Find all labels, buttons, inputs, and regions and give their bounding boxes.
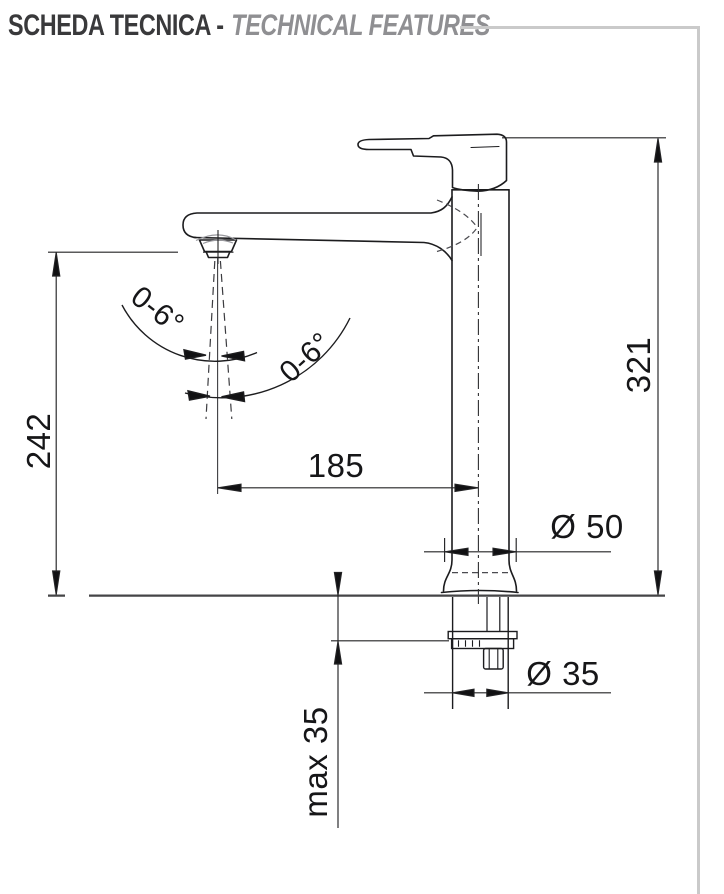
hose-connector-lines <box>489 649 498 669</box>
arrow-down <box>334 573 341 595</box>
arrow-right <box>493 548 516 555</box>
aerator-tangent-curves <box>196 235 236 244</box>
arc-lower-arrow-right <box>222 392 245 402</box>
arrow-down <box>654 571 661 595</box>
arrow-right <box>455 484 478 491</box>
mounting-washer <box>448 632 517 639</box>
spout-top-edge <box>183 197 452 238</box>
tie-rod <box>487 597 500 632</box>
handle-lever <box>358 134 507 191</box>
base-bottom-edge <box>442 591 519 593</box>
label-max-deck-thickness: max 35 <box>297 706 335 817</box>
arrow-left <box>218 484 241 491</box>
nut-knurling <box>459 640 480 647</box>
label-spout-height: 242 <box>20 413 58 470</box>
arrow-up <box>334 642 341 665</box>
label-base-diameter: Ø 50 <box>550 508 624 546</box>
arrow-left <box>445 548 468 555</box>
aerator-crosshair <box>203 230 234 264</box>
arrow-right <box>487 689 508 696</box>
arrow-left <box>453 689 474 696</box>
arrow-down <box>53 571 60 595</box>
handle-detail-line <box>471 147 499 148</box>
label-spout-reach: 185 <box>308 447 365 485</box>
arc-upper-arrow-left <box>184 350 206 359</box>
arrow-up <box>53 253 60 277</box>
technical-sheet: SCHEDA TECNICA - TECHNICAL FEATURES <box>0 0 724 894</box>
mounting-nut <box>452 639 514 649</box>
dimension-max-35 <box>331 572 449 828</box>
label-total-height: 321 <box>620 337 658 394</box>
dimension-185 <box>218 484 478 491</box>
hose-connector <box>484 649 504 670</box>
arrow-up <box>654 139 661 163</box>
label-shank-diameter: Ø 35 <box>526 655 600 693</box>
column-left-edge <box>444 190 453 591</box>
faucet-outline <box>183 134 518 592</box>
column-right-edge <box>509 190 517 591</box>
